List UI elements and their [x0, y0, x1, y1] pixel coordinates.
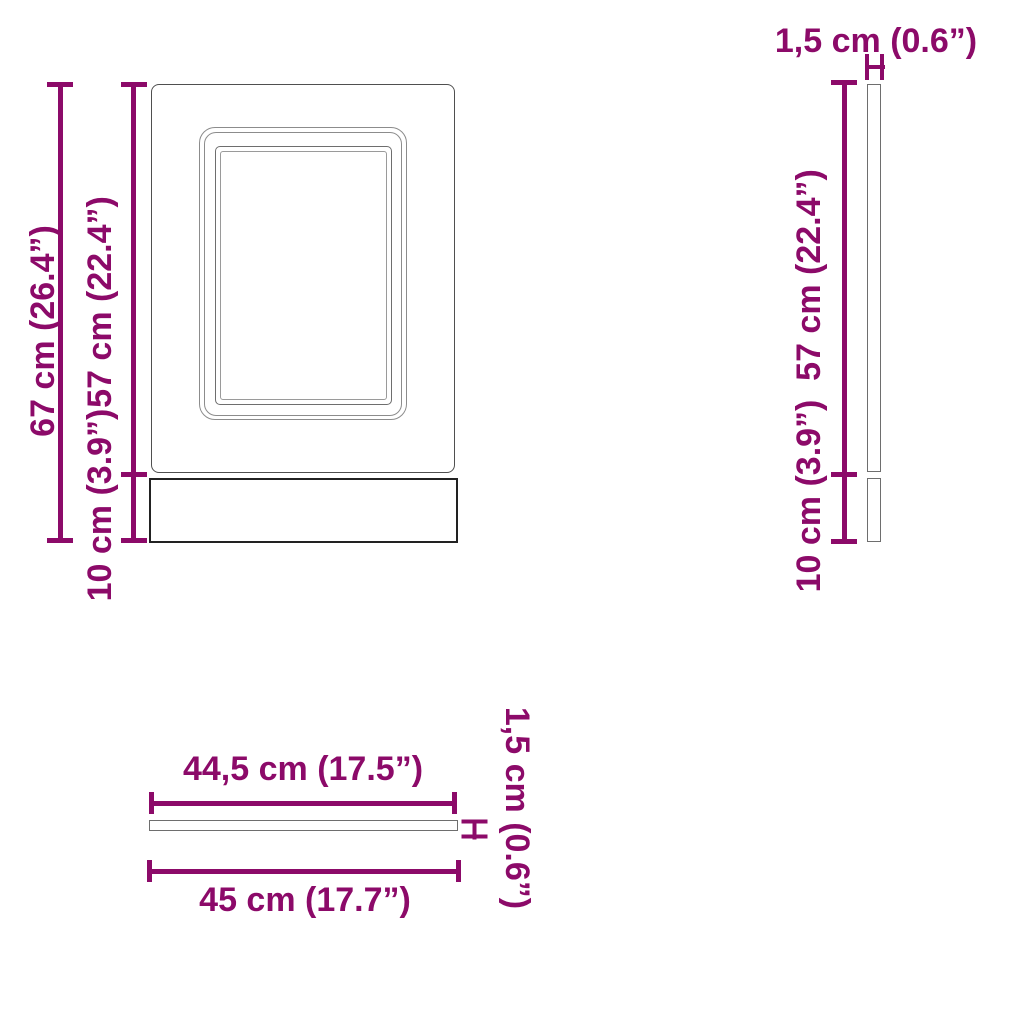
- dim-tick: [149, 792, 154, 814]
- dim-tick: [456, 860, 461, 882]
- front-door-height-label: 57 cm (22.4”): [83, 196, 117, 408]
- front-plinth-height-label: 10 cm (3.9”): [83, 409, 117, 602]
- thickness-bracket-icon: [461, 820, 487, 839]
- side-thickness-label: 1,5 cm (0.6”): [775, 24, 977, 58]
- side-door-height-label: 57 cm (22.4”): [792, 169, 826, 381]
- panel-width-dim-line: [151, 801, 454, 806]
- front-total-height-label: 67 cm (26.4”): [26, 225, 60, 437]
- top-panel-bar: [149, 820, 458, 831]
- dim-tick: [831, 539, 857, 544]
- dim-tick: [831, 472, 857, 477]
- dim-tick: [47, 82, 73, 87]
- door-panel-frame-inner: [220, 151, 387, 400]
- side-panel-upper: [867, 84, 881, 472]
- dim-tick: [452, 792, 457, 814]
- total-width-dim-line: [149, 869, 458, 874]
- thickness-bracket-icon: [865, 54, 884, 80]
- top-thickness-label: 1,5 cm (0.6”): [500, 707, 534, 909]
- side-panel-lower: [867, 478, 881, 542]
- dim-tick: [121, 538, 147, 543]
- top-total-width-label: 45 cm (17.7”): [199, 883, 411, 917]
- dim-tick: [47, 538, 73, 543]
- top-panel-width-label: 44,5 cm (17.5”): [183, 752, 423, 786]
- plinth-outline: [149, 478, 458, 543]
- side-plinth-height-label: 10 cm (3.9”): [792, 400, 826, 593]
- dimension-diagram: 67 cm (26.4”) 57 cm (22.4”) 10 cm (3.9”)…: [0, 0, 1024, 1024]
- dim-tick: [121, 82, 147, 87]
- dim-tick: [121, 472, 147, 477]
- dim-tick: [147, 860, 152, 882]
- dim-tick: [831, 80, 857, 85]
